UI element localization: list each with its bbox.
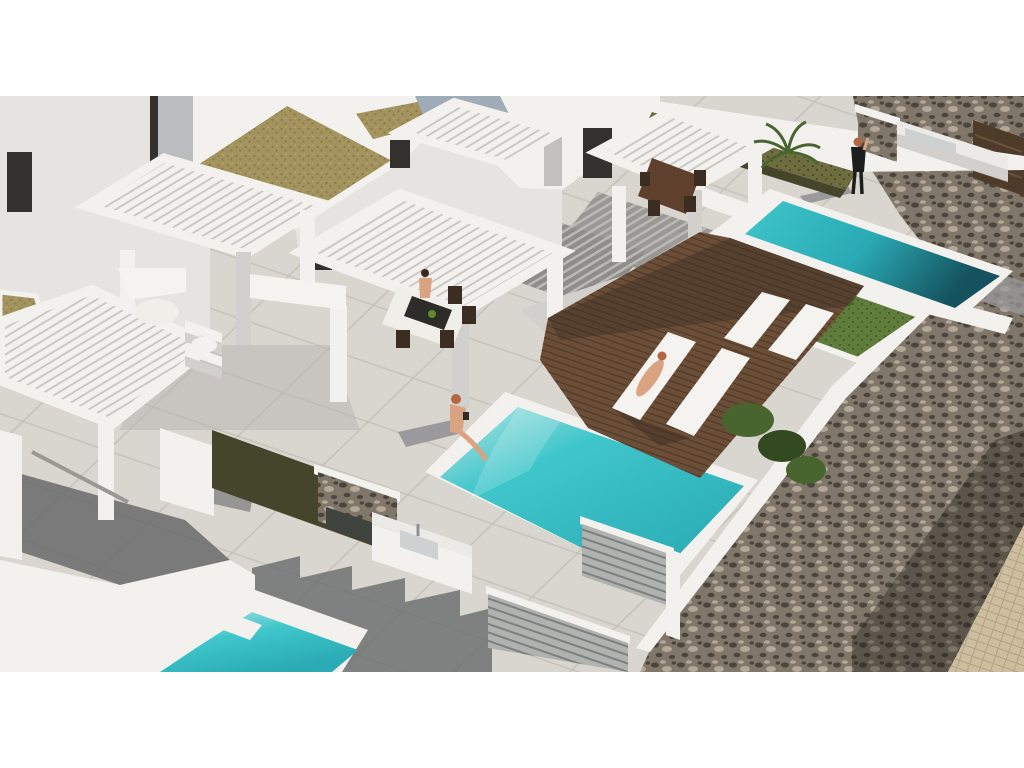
coffee-table-round [135,299,179,325]
dark-doorway-left [7,152,32,212]
table-plant [428,310,436,318]
letterbox-bottom [0,672,1024,768]
dining-chair [648,200,660,216]
dining-chair [694,170,706,186]
drink-cup [463,412,469,420]
villa-render: Aerial 3D architectural rendering of mod… [0,0,1024,768]
dining-chair [684,196,696,212]
dining-chair [396,330,410,348]
letterbox-top [0,0,1024,96]
dining-chair [640,172,650,186]
dining-chair [462,306,476,324]
ac-unit [191,337,217,353]
screen-post [666,548,680,640]
dining-chair [448,286,462,304]
dining-chair [440,330,454,348]
render-frame: Aerial 3D architectural rendering of mod… [0,0,1024,768]
